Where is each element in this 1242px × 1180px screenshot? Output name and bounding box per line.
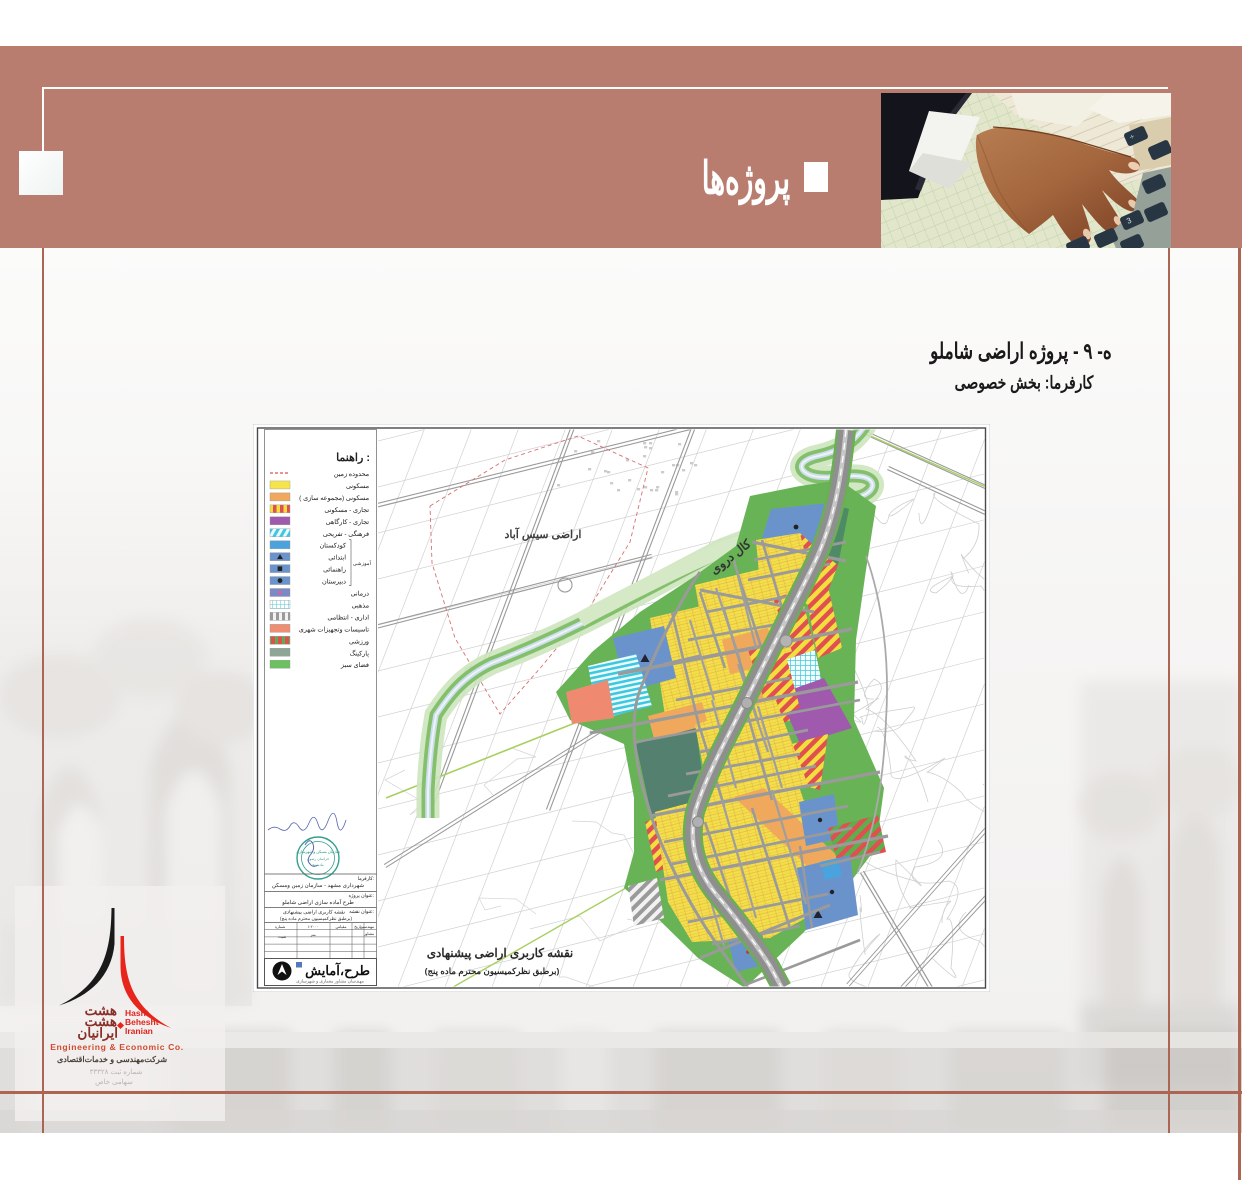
svg-text:راهنما :: راهنما : — [336, 452, 370, 464]
svg-text:تجاری - کارگاهی: تجاری - کارگاهی — [326, 518, 370, 526]
svg-text:مسکونی (مجموعه سازی ): مسکونی (مجموعه سازی ) — [299, 495, 369, 502]
svg-text:عنوان نقشه:: عنوان نقشه: — [349, 909, 374, 915]
svg-text:دبیرستان: دبیرستان — [322, 579, 346, 586]
svg-text:آموزشی: آموزشی — [353, 560, 372, 567]
svg-text:فضای سبز: فضای سبز — [340, 662, 369, 669]
svg-text:ورزشی: ورزشی — [349, 638, 369, 645]
svg-text:ایرانیان: ایرانیان — [77, 1026, 118, 1042]
svg-text:شهرداری مشهد - سازمان زمین ومس: شهرداری مشهد - سازمان زمین ومسکن — [272, 882, 365, 889]
svg-text:مهندسان مشاور معماری و شهرسازی: مهندسان مشاور معماری و شهرسازی — [296, 979, 364, 984]
svg-text:طرح آماده سازی اراضی شاملو: طرح آماده سازی اراضی شاملو — [281, 898, 354, 906]
svg-text:شیت: شیت — [278, 935, 287, 939]
svg-text:اراضی سیس آباد: اراضی سیس آباد — [505, 527, 582, 541]
svg-text:۱:۲۰۰۰: ۱:۲۰۰۰ — [307, 925, 318, 929]
svg-text:نقشه کاربری اراضی پیشنهادی: نقشه کاربری اراضی پیشنهادی — [283, 910, 345, 916]
svg-text:فرهنگی - تفریحی: فرهنگی - تفریحی — [323, 530, 369, 538]
svg-text:مشاور: مشاور — [363, 931, 374, 936]
svg-text:شرکت‌مهندسی و خدمات‌اقتصادی: شرکت‌مهندسی و خدمات‌اقتصادی — [57, 1055, 167, 1065]
svg-text:کارفرما:: کارفرما: — [358, 876, 374, 882]
svg-text:اداری - انتظامی: اداری - انتظامی — [327, 614, 369, 621]
svg-text:محدوده زمین: محدوده زمین — [334, 471, 369, 478]
svg-text:Iranian: Iranian — [125, 1026, 153, 1036]
svg-text:راهنمائی: راهنمائی — [323, 567, 346, 574]
svg-text:متر: متر — [309, 933, 315, 937]
svg-text:Engineering & Economic Co.: Engineering & Economic Co. — [50, 1042, 184, 1052]
svg-text:خراسان رضوی: خراسان رضوی — [307, 856, 330, 861]
svg-text:ابتدائی: ابتدائی — [328, 555, 346, 562]
svg-text:مقیاس: مقیاس — [336, 924, 347, 929]
svg-text:مهندسین: مهندسین — [360, 925, 374, 929]
svg-text:طرح،آمایش: طرح،آمایش — [305, 962, 370, 979]
svg-text:نقشه کاربری اراضی پیشنهادی: نقشه کاربری اراضی پیشنهادی — [427, 946, 573, 961]
svg-text:کودکستان: کودکستان — [319, 543, 346, 550]
svg-text:ماده پنج: ماده پنج — [312, 863, 323, 867]
svg-text:تجاری - مسکونی: تجاری - مسکونی — [324, 507, 369, 514]
svg-text:تاسیسات وتجهیزات شهری: تاسیسات وتجهیزات شهری — [299, 626, 369, 633]
svg-text:شماره: شماره — [275, 924, 286, 929]
svg-text:سهامی خاص: سهامی خاص — [95, 1078, 133, 1086]
svg-text:مسکونی: مسکونی — [346, 483, 369, 490]
svg-text:مذهبی: مذهبی — [352, 602, 369, 609]
svg-text:سازمان مسکن و شهرسازی: سازمان مسکن و شهرسازی — [296, 849, 341, 854]
svg-text:عنوان پروژه:: عنوان پروژه: — [349, 893, 374, 899]
svg-text:درمانی: درمانی — [351, 591, 370, 598]
svg-text:پارکینگ: پارکینگ — [350, 649, 370, 657]
svg-text:تاریخ: تاریخ — [354, 924, 362, 929]
svg-text:شماره ثبت ۳۳۳۲۸: شماره ثبت ۳۳۳۲۸ — [90, 1068, 143, 1076]
svg-text:(برطبق نظرکمیسیون محترم ماده پ: (برطبق نظرکمیسیون محترم ماده پنج) — [425, 966, 560, 977]
